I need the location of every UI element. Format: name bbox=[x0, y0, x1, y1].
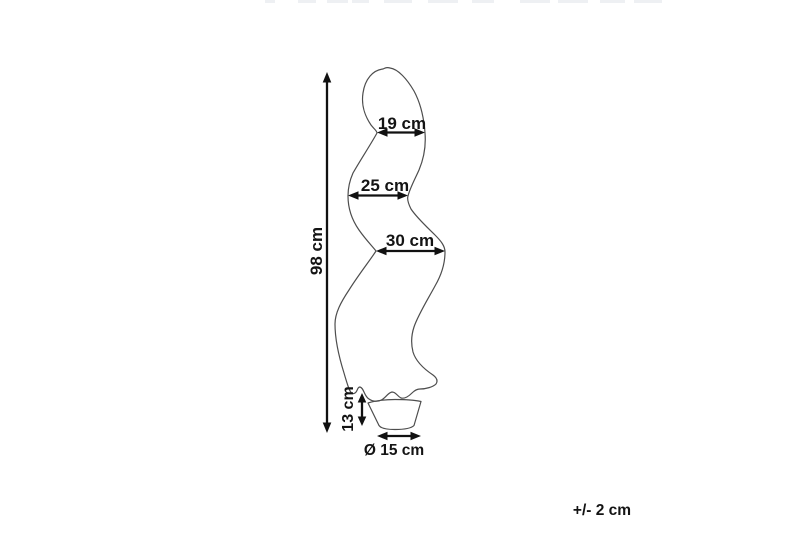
pot-diameter-15-label: Ø 15 cm bbox=[364, 442, 424, 459]
arrow-head-up bbox=[323, 72, 332, 83]
arrow-head-down bbox=[323, 423, 332, 434]
pot-height-13-arrow bbox=[358, 393, 367, 426]
width-30-label: 30 cm bbox=[386, 231, 434, 250]
pot-height-13-label: 13 cm bbox=[340, 386, 357, 431]
tolerance-note: +/- 2 cm bbox=[573, 502, 631, 519]
arrow-head-down bbox=[358, 417, 367, 427]
diagram-svg: 98 cm 19 cm 25 cm 30 cm 13 cm bbox=[0, 0, 800, 533]
pot-diameter-15-arrow bbox=[377, 432, 421, 441]
arrow-head-right bbox=[435, 247, 446, 256]
arrow-head-left bbox=[348, 191, 359, 200]
height-98-label: 98 cm bbox=[307, 227, 326, 275]
arrow-head-left bbox=[377, 432, 388, 441]
width-25-label: 25 cm bbox=[361, 176, 409, 195]
pot-outline bbox=[368, 400, 421, 430]
arrow-head-right bbox=[411, 432, 422, 441]
width-19-label: 19 cm bbox=[378, 114, 426, 133]
product-dimension-diagram: 98 cm 19 cm 25 cm 30 cm 13 cm bbox=[0, 0, 800, 533]
